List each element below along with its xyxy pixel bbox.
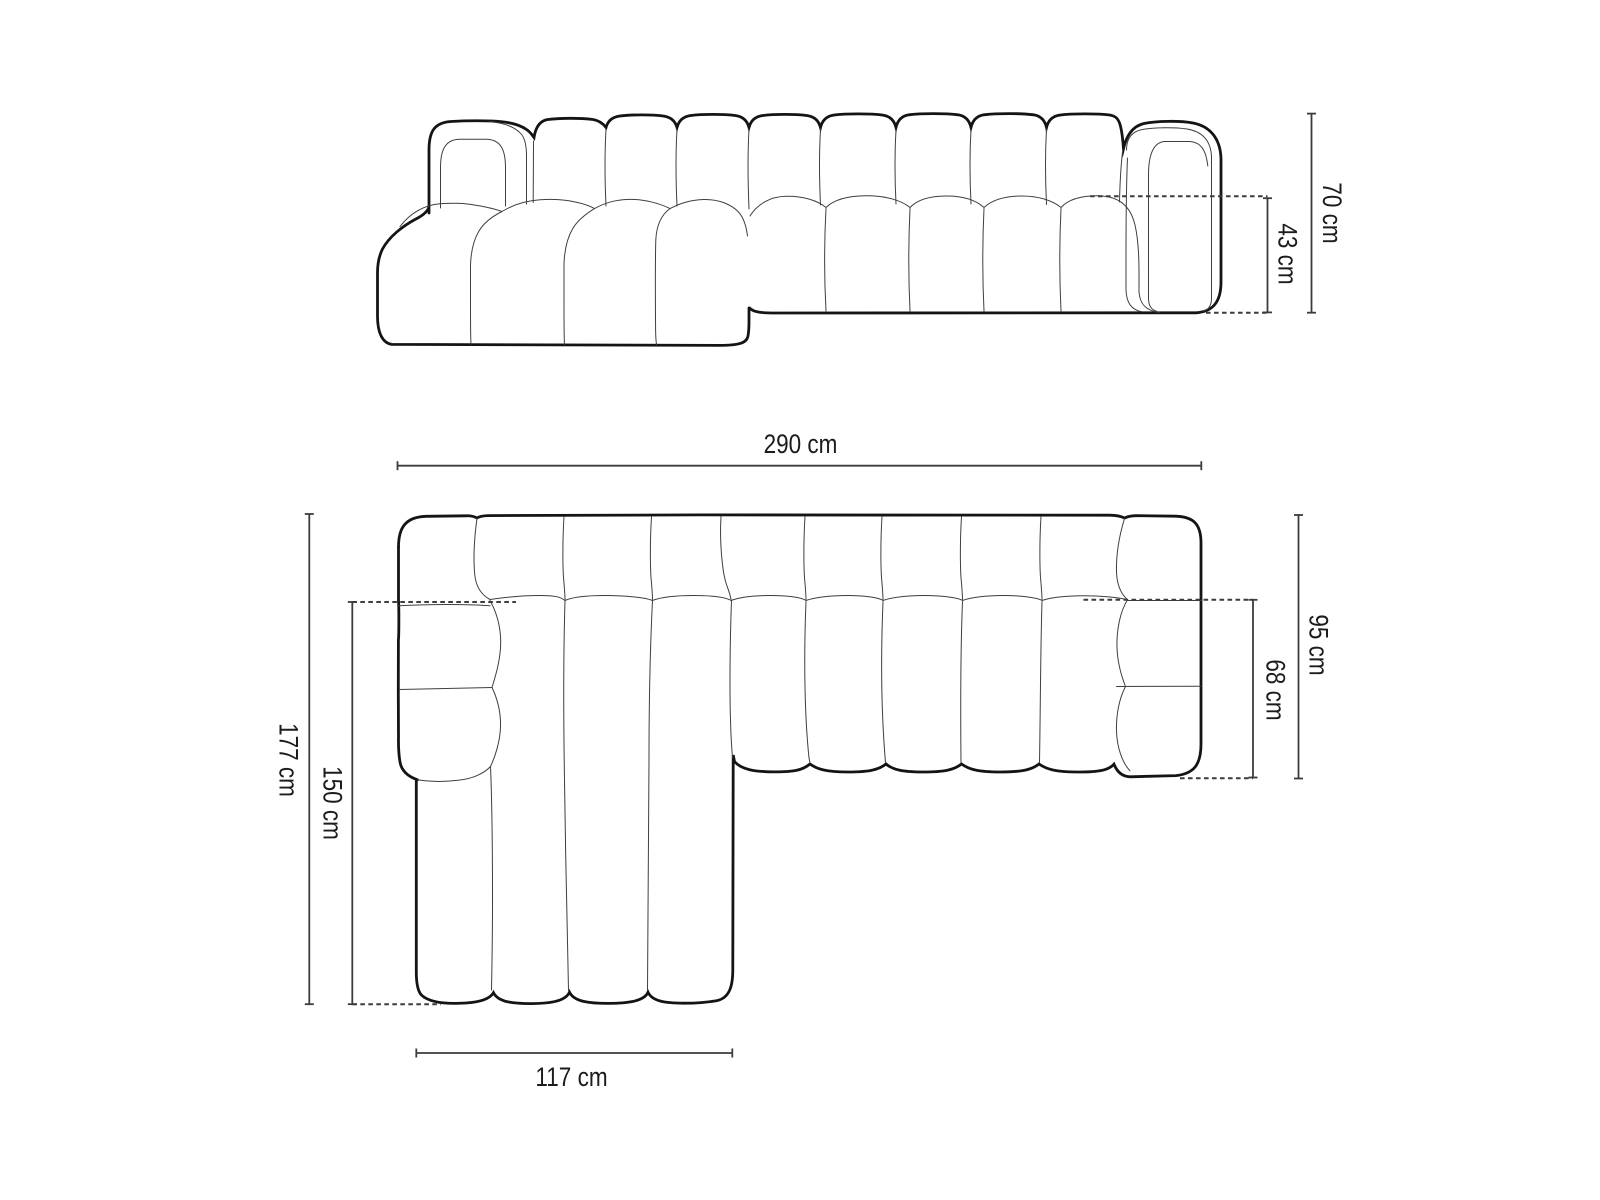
svg-text:70 cm: 70 cm xyxy=(1317,182,1346,243)
svg-text:117 cm: 117 cm xyxy=(535,1063,607,1092)
svg-text:150 cm: 150 cm xyxy=(317,766,346,840)
svg-text:95 cm: 95 cm xyxy=(1303,614,1332,675)
svg-text:43 cm: 43 cm xyxy=(1272,223,1301,284)
svg-text:290 cm: 290 cm xyxy=(764,430,838,459)
svg-text:177 cm: 177 cm xyxy=(273,723,302,797)
svg-text:68 cm: 68 cm xyxy=(1260,659,1289,720)
